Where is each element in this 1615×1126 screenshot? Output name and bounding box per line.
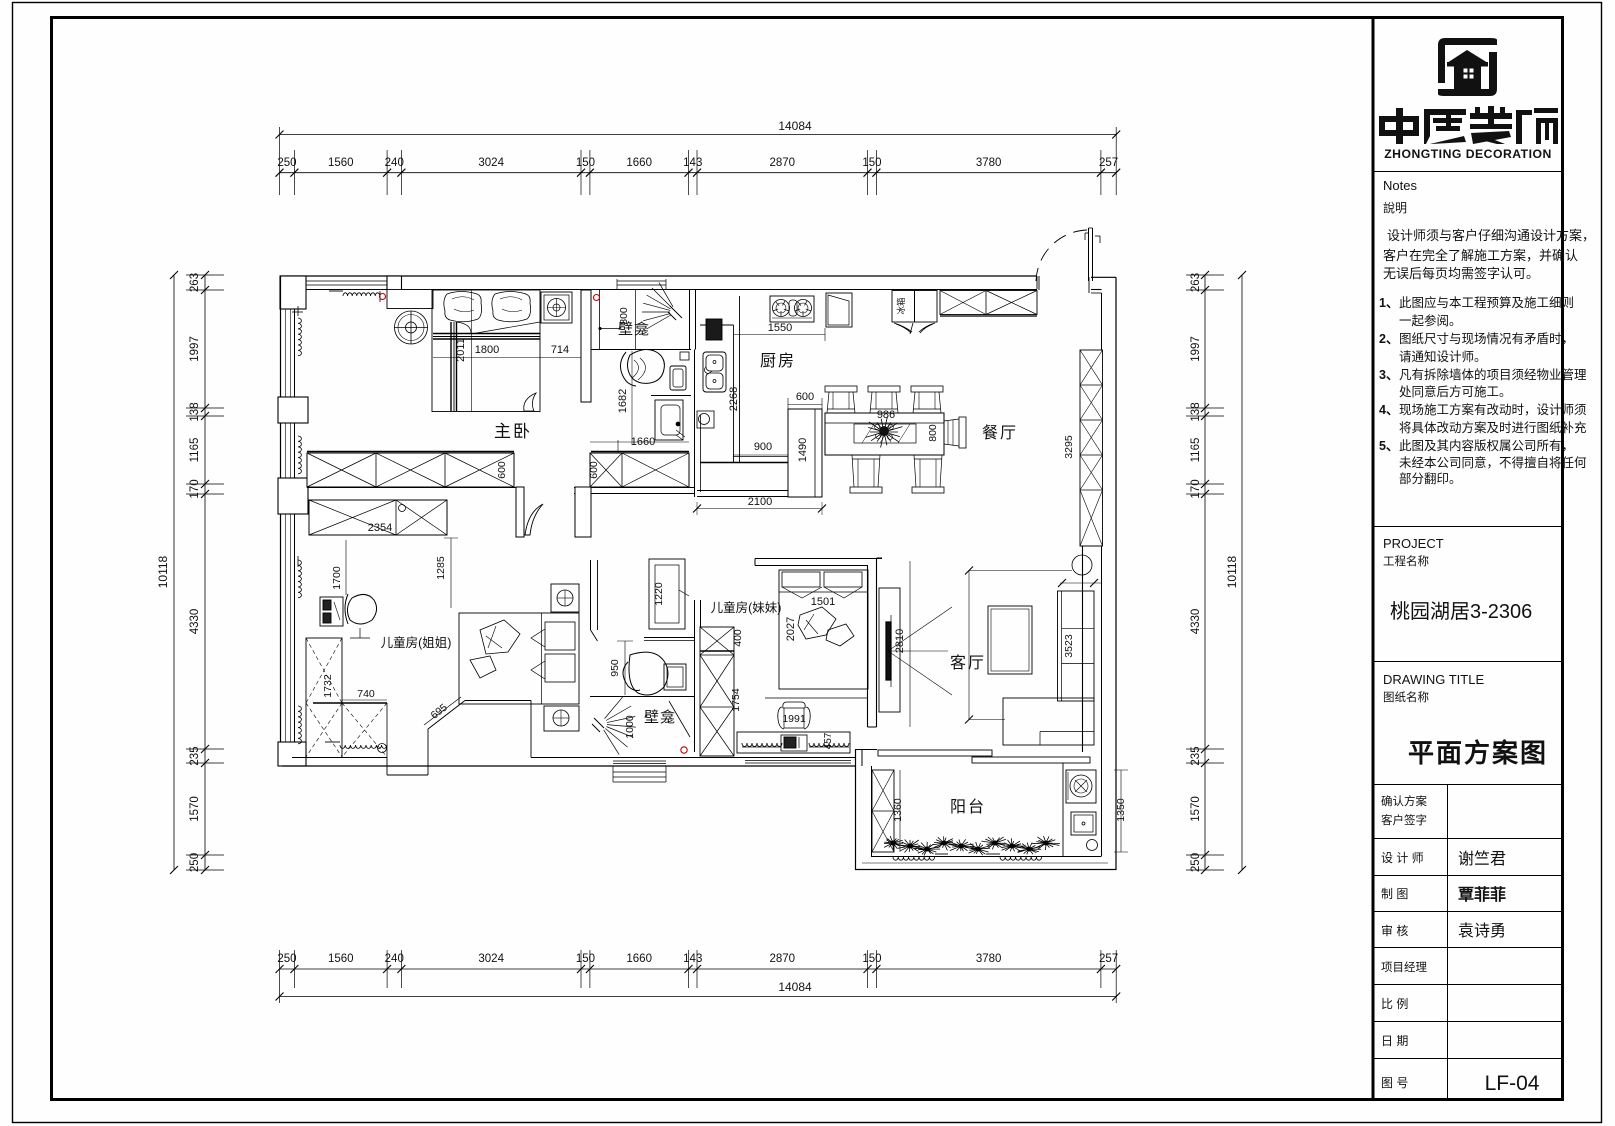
svg-text:阳台: 阳台	[950, 798, 986, 816]
svg-text:143: 143	[683, 157, 702, 169]
svg-text:平面方案图: 平面方案图	[1408, 738, 1548, 768]
svg-text:986: 986	[877, 409, 895, 421]
svg-text:图纸尺寸与现场情况有矛盾时，: 图纸尺寸与现场情况有矛盾时，	[1399, 332, 1574, 346]
svg-text:桃园湖居3-2306: 桃园湖居3-2306	[1390, 600, 1532, 623]
svg-text:263: 263	[1190, 273, 1202, 292]
svg-text:170: 170	[1190, 479, 1202, 498]
svg-text:厨房: 厨房	[760, 352, 796, 370]
svg-text:处同意后方可施工。: 处同意后方可施工。	[1399, 384, 1512, 399]
svg-text:客户签字: 客户签字	[1381, 813, 1427, 827]
svg-text:138: 138	[1190, 402, 1202, 421]
svg-text:1560: 1560	[328, 953, 354, 965]
svg-text:1660: 1660	[626, 157, 652, 169]
svg-text:2011: 2011	[455, 338, 467, 362]
svg-text:235: 235	[189, 746, 201, 765]
svg-text:1360: 1360	[892, 798, 904, 822]
svg-text:250: 250	[189, 853, 201, 872]
svg-text:1、: 1、	[1379, 296, 1398, 310]
svg-text:一起参阅。: 一起参阅。	[1399, 313, 1462, 328]
svg-text:1991: 1991	[782, 713, 806, 725]
svg-text:257: 257	[1099, 157, 1118, 169]
svg-text:设 计 师: 设 计 师	[1381, 851, 1424, 865]
svg-text:儿童房(妹妹): 儿童房(妹妹)	[711, 600, 782, 615]
svg-text:主卧: 主卧	[494, 422, 532, 441]
svg-text:2810: 2810	[894, 629, 906, 653]
svg-text:1997: 1997	[189, 336, 201, 362]
svg-text:14084: 14084	[778, 119, 812, 133]
svg-text:2100: 2100	[748, 496, 772, 508]
svg-text:600: 600	[796, 391, 814, 403]
svg-text:800: 800	[618, 307, 630, 325]
svg-text:客户在完全了解施工方案，并确认: 客户在完全了解施工方案，并确认	[1383, 248, 1578, 263]
svg-text:5、: 5、	[1379, 439, 1398, 453]
svg-text:240: 240	[385, 953, 404, 965]
svg-text:DRAWING TITLE: DRAWING TITLE	[1383, 672, 1484, 687]
svg-text:257: 257	[1099, 953, 1118, 965]
svg-text:图纸名称: 图纸名称	[1383, 690, 1429, 704]
svg-text:设计师须与客户仔细沟通设计方案，: 设计师须与客户仔细沟通设计方案，	[1387, 228, 1595, 243]
svg-text:1570: 1570	[1190, 796, 1202, 822]
svg-text:儿童房(姐姐): 儿童房(姐姐)	[381, 635, 452, 650]
svg-text:1000: 1000	[624, 715, 636, 739]
svg-text:3780: 3780	[976, 157, 1002, 169]
svg-text:1560: 1560	[328, 157, 354, 169]
svg-text:950: 950	[609, 659, 621, 677]
svg-text:800: 800	[927, 424, 939, 442]
svg-text:此图应与本工程预算及施工细则: 此图应与本工程预算及施工细则	[1399, 295, 1574, 310]
svg-text:263: 263	[189, 273, 201, 292]
svg-text:客厅: 客厅	[950, 654, 986, 672]
svg-text:3523: 3523	[1063, 634, 1075, 658]
svg-text:此图及其内容版权属公司所有，: 此图及其内容版权属公司所有，	[1399, 438, 1574, 453]
svg-text:Notes: Notes	[1383, 178, 1417, 193]
svg-text:请通知设计师。: 请通知设计师。	[1399, 349, 1487, 364]
svg-text:150: 150	[862, 157, 881, 169]
svg-text:2、: 2、	[1379, 332, 1398, 346]
svg-text:400: 400	[732, 629, 744, 647]
svg-text:壁龛: 壁龛	[644, 709, 676, 726]
svg-text:1165: 1165	[1190, 438, 1202, 463]
svg-text:项目经理: 项目经理	[1381, 961, 1427, 974]
svg-text:餐厅: 餐厅	[982, 424, 1018, 442]
svg-text:150: 150	[576, 157, 595, 169]
svg-text:1490: 1490	[797, 438, 809, 462]
svg-text:說明: 說明	[1383, 200, 1407, 215]
svg-text:覃菲菲: 覃菲菲	[1458, 885, 1506, 904]
svg-text:确认方案: 确认方案	[1381, 794, 1427, 808]
svg-text:无误后每页均需签字认可。: 无误后每页均需签字认可。	[1383, 266, 1539, 281]
svg-text:740: 740	[357, 688, 375, 700]
svg-text:143: 143	[683, 953, 702, 965]
svg-text:250: 250	[277, 157, 296, 169]
svg-text:1754: 1754	[730, 688, 742, 712]
svg-text:714: 714	[551, 344, 569, 356]
svg-text:240: 240	[385, 157, 404, 169]
svg-text:1501: 1501	[811, 596, 835, 608]
svg-text:10118: 10118	[1225, 555, 1239, 588]
svg-text:1660: 1660	[626, 953, 652, 965]
svg-text:现场施工方案有改动时，设计师须: 现场施工方案有改动时，设计师须	[1399, 402, 1587, 417]
svg-text:1570: 1570	[189, 796, 201, 822]
svg-text:3024: 3024	[478, 953, 504, 965]
svg-text:凡有拆除墙体的项目须经物业管理: 凡有拆除墙体的项目须经物业管理	[1399, 367, 1587, 382]
svg-text:2870: 2870	[769, 953, 795, 965]
svg-text:14084: 14084	[778, 980, 812, 994]
svg-text:1165: 1165	[189, 438, 201, 463]
svg-text:1220: 1220	[653, 582, 665, 606]
svg-text:900: 900	[754, 441, 772, 453]
svg-text:袁诗勇: 袁诗勇	[1458, 922, 1506, 940]
svg-text:1732: 1732	[322, 674, 334, 698]
svg-text:2354: 2354	[368, 522, 392, 534]
svg-text:冰箱: 冰箱	[896, 297, 906, 315]
svg-text:ZHONGTING DECORATION: ZHONGTING DECORATION	[1384, 147, 1552, 161]
svg-text:1997: 1997	[1190, 336, 1202, 362]
svg-text:1682: 1682	[617, 389, 629, 413]
svg-text:250: 250	[277, 953, 296, 965]
svg-text:1285: 1285	[435, 556, 447, 580]
svg-text:170: 170	[189, 479, 201, 498]
svg-text:PROJECT: PROJECT	[1383, 536, 1444, 551]
svg-text:2027: 2027	[785, 617, 797, 641]
svg-text:图 号: 图 号	[1381, 1076, 1408, 1090]
svg-text:235: 235	[1190, 746, 1202, 765]
svg-text:150: 150	[576, 953, 595, 965]
svg-text:日 期: 日 期	[1381, 1034, 1408, 1048]
svg-text:600: 600	[588, 461, 600, 479]
svg-text:谢竺君: 谢竺君	[1458, 850, 1506, 868]
svg-text:比 例: 比 例	[1381, 997, 1408, 1011]
svg-text:审 核: 审 核	[1381, 923, 1408, 938]
svg-text:3295: 3295	[1063, 435, 1075, 459]
svg-text:4、: 4、	[1379, 403, 1398, 417]
svg-text:制 图: 制 图	[1381, 887, 1408, 901]
svg-text:3024: 3024	[478, 157, 504, 169]
svg-text:未经本公司同意，不得擅自将任何: 未经本公司同意，不得擅自将任何	[1399, 455, 1587, 470]
svg-text:3780: 3780	[976, 953, 1002, 965]
svg-text:3、: 3、	[1379, 368, 1398, 382]
svg-text:工程名称: 工程名称	[1383, 554, 1429, 568]
svg-text:2268: 2268	[728, 387, 740, 411]
svg-text:2870: 2870	[769, 157, 795, 169]
svg-text:1800: 1800	[475, 344, 499, 356]
svg-text:LF-04: LF-04	[1485, 1072, 1540, 1095]
svg-text:250: 250	[1190, 853, 1202, 872]
svg-text:1550: 1550	[768, 322, 792, 334]
svg-text:1350: 1350	[1115, 798, 1127, 822]
svg-text:4330: 4330	[1190, 609, 1202, 635]
svg-text:138: 138	[189, 402, 201, 421]
svg-text:10118: 10118	[156, 555, 170, 588]
svg-text:4330: 4330	[189, 609, 201, 635]
svg-text:600: 600	[496, 461, 508, 479]
svg-text:部分翻印。: 部分翻印。	[1399, 471, 1462, 486]
svg-text:1700: 1700	[331, 566, 343, 590]
svg-text:将具体改动方案及时进行图纸补充: 将具体改动方案及时进行图纸补充	[1399, 420, 1587, 435]
svg-text:150: 150	[862, 953, 881, 965]
